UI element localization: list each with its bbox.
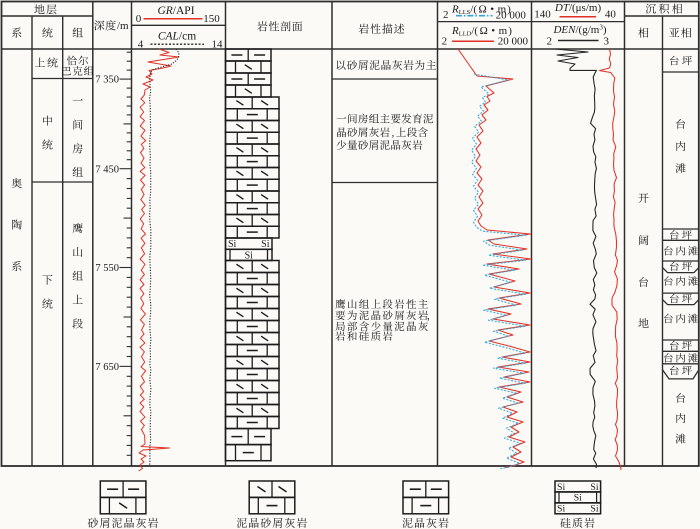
svg-text:14: 14 (212, 39, 224, 51)
svg-text:7 650: 7 650 (95, 362, 119, 373)
svg-text:0: 0 (136, 13, 142, 25)
svg-text:Si: Si (590, 482, 598, 493)
svg-text:7 350: 7 350 (95, 75, 119, 86)
svg-text:Si: Si (574, 493, 582, 504)
svg-text:2: 2 (546, 35, 552, 47)
svg-text:7 450: 7 450 (95, 164, 119, 175)
svg-text:140: 140 (534, 8, 551, 20)
svg-text:Si: Si (261, 239, 270, 250)
svg-text:2: 2 (442, 36, 448, 48)
svg-text:150: 150 (203, 13, 220, 25)
svg-text:Si: Si (557, 482, 565, 493)
svg-text:20 000: 20 000 (498, 36, 529, 48)
svg-text:DT/(μs/m): DT/(μs/m) (554, 2, 602, 14)
svg-text:2: 2 (443, 9, 449, 21)
svg-text:Si: Si (557, 504, 565, 515)
svg-text:Si: Si (590, 504, 598, 515)
svg-text:3: 3 (604, 35, 610, 47)
svg-text:40: 40 (605, 8, 617, 20)
svg-text:Si: Si (228, 239, 237, 250)
svg-text:DEN/(g/m3): DEN/(g/m3) (552, 24, 606, 37)
svg-text:GR/API: GR/API (157, 5, 194, 17)
svg-text:7 550: 7 550 (95, 263, 119, 274)
svg-text:/m: /m (117, 20, 129, 32)
svg-text:Si: Si (245, 250, 254, 261)
svg-text:20 000: 20 000 (496, 10, 527, 22)
svg-text:4: 4 (138, 39, 144, 51)
svg-text:CAL/cm: CAL/cm (158, 31, 196, 43)
